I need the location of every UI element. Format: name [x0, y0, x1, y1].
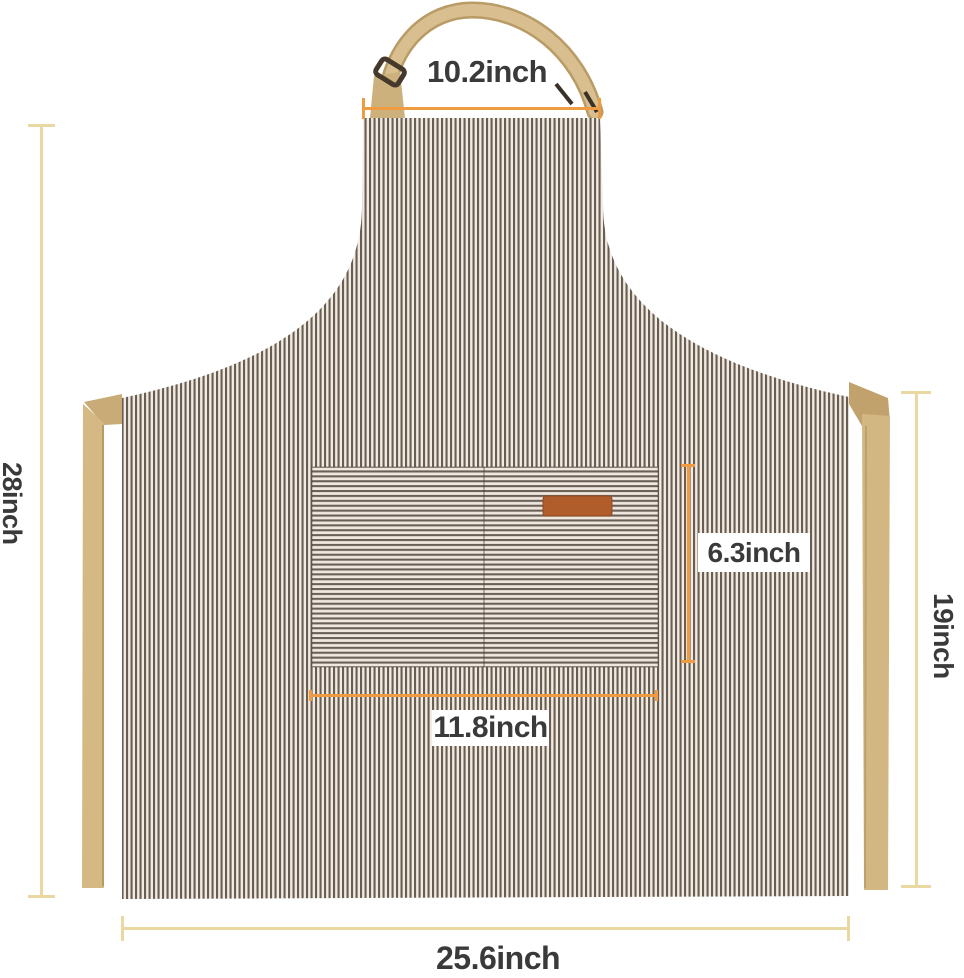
pocket-height-dimension-line [687, 465, 690, 662]
neck-width-tick-left [362, 98, 365, 119]
pocket-height-tick-bottom [681, 660, 695, 663]
left-waist-tie [82, 394, 122, 888]
bottom-width-label: 25.6inch [418, 940, 578, 977]
pocket-height-label: 6.3inch [698, 533, 810, 572]
total-height-label: 28inch [0, 455, 27, 551]
bottom-width-dimension-line [122, 927, 849, 930]
pocket-height-tick-top [681, 464, 695, 467]
chest-pocket [312, 467, 658, 667]
neck-width-label: 10.2inch [407, 54, 567, 90]
pocket-width-tick-right [655, 690, 658, 701]
pocket-width-label: 11.8inch [432, 710, 549, 746]
apron-illustration [0, 0, 964, 978]
pocket-width-dimension-line [310, 694, 658, 697]
neck-width-dimension-line [363, 107, 600, 110]
skirt-height-tick-bottom [901, 885, 931, 888]
neck-width-tick-right [598, 98, 601, 119]
skirt-height-dimension-line [915, 392, 918, 887]
skirt-height-tick-top [901, 391, 931, 394]
skirt-height-label: 19inch [927, 588, 959, 684]
total-height-tick-top [28, 124, 55, 127]
product-dimension-diagram: 10.2inch 28inch 6.3inch 11.8inch 19inch … [0, 0, 964, 978]
bottom-width-tick-right [847, 916, 850, 941]
right-waist-tie [849, 382, 890, 890]
total-height-tick-bottom [28, 895, 55, 898]
total-height-dimension-line [40, 125, 43, 897]
pocket-width-tick-left [309, 690, 312, 701]
bottom-width-tick-left [121, 916, 124, 941]
leather-label-patch [543, 496, 612, 516]
